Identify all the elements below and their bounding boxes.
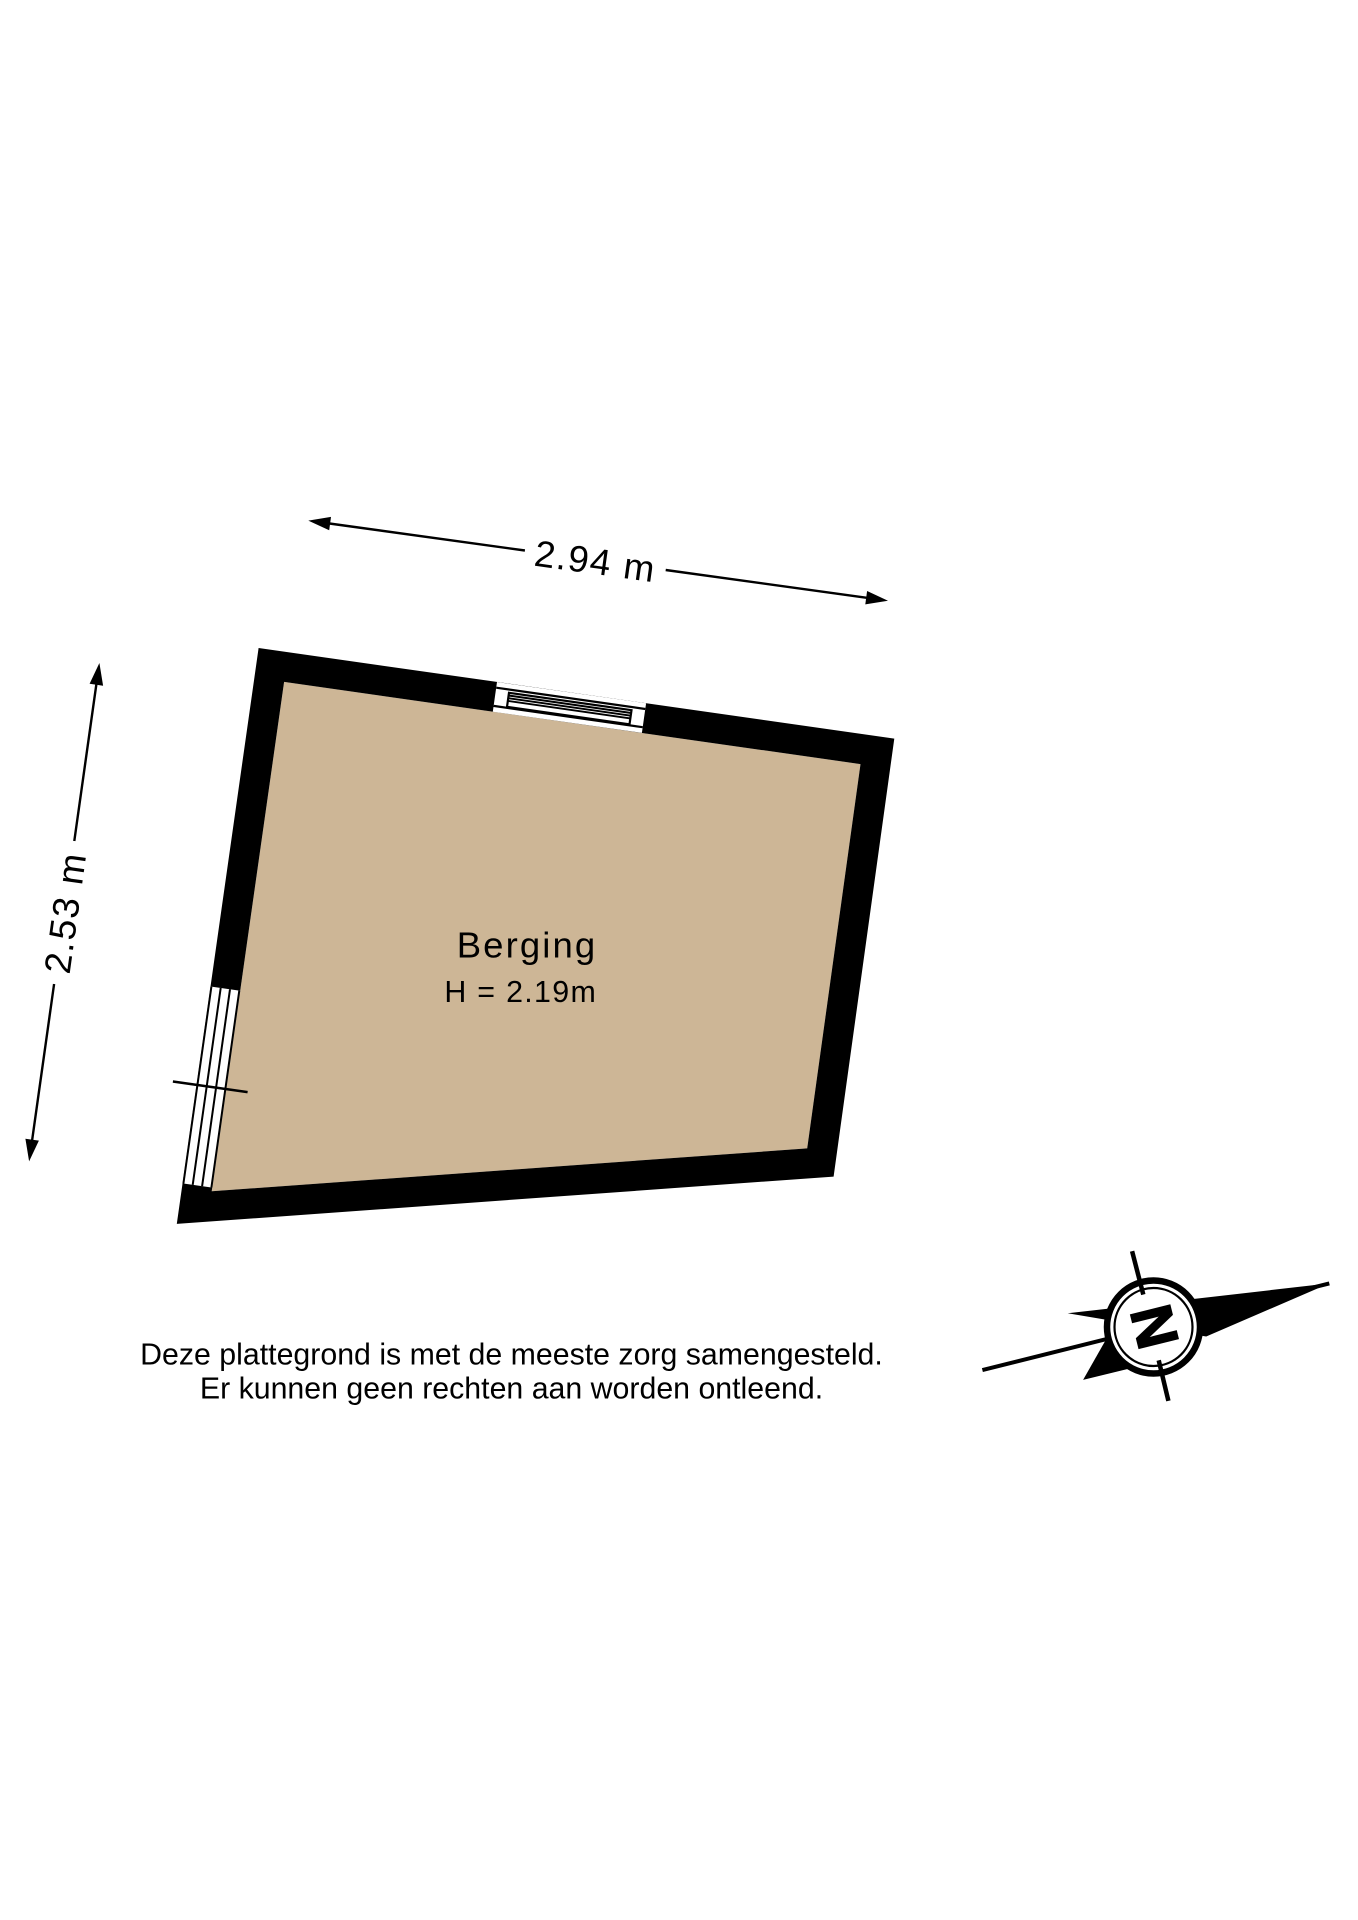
svg-text:2.94 m: 2.94 m <box>532 533 659 590</box>
svg-text:2.53 m: 2.53 m <box>37 849 94 976</box>
svg-text:Er kunnen geen rechten aan wor: Er kunnen geen rechten aan worden ontlee… <box>200 1372 823 1405</box>
svg-text:Deze plattegrond is met de mee: Deze plattegrond is met de meeste zorg s… <box>140 1338 883 1371</box>
svg-text:H = 2.19m: H = 2.19m <box>444 975 597 1009</box>
svg-text:Berging: Berging <box>457 925 598 966</box>
